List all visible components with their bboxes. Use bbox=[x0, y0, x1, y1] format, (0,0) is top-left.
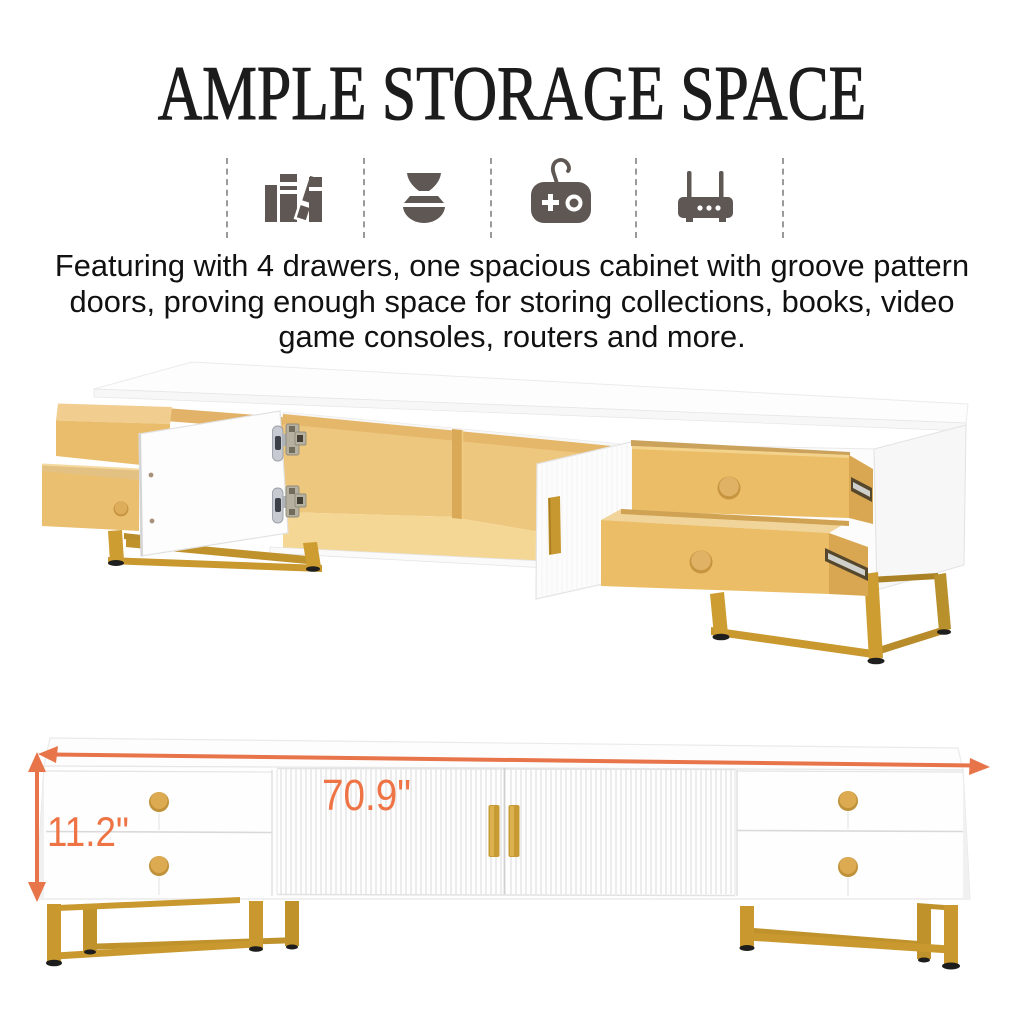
svg-text:11.2": 11.2" bbox=[47, 808, 129, 855]
svg-text:70.9": 70.9" bbox=[322, 771, 411, 820]
